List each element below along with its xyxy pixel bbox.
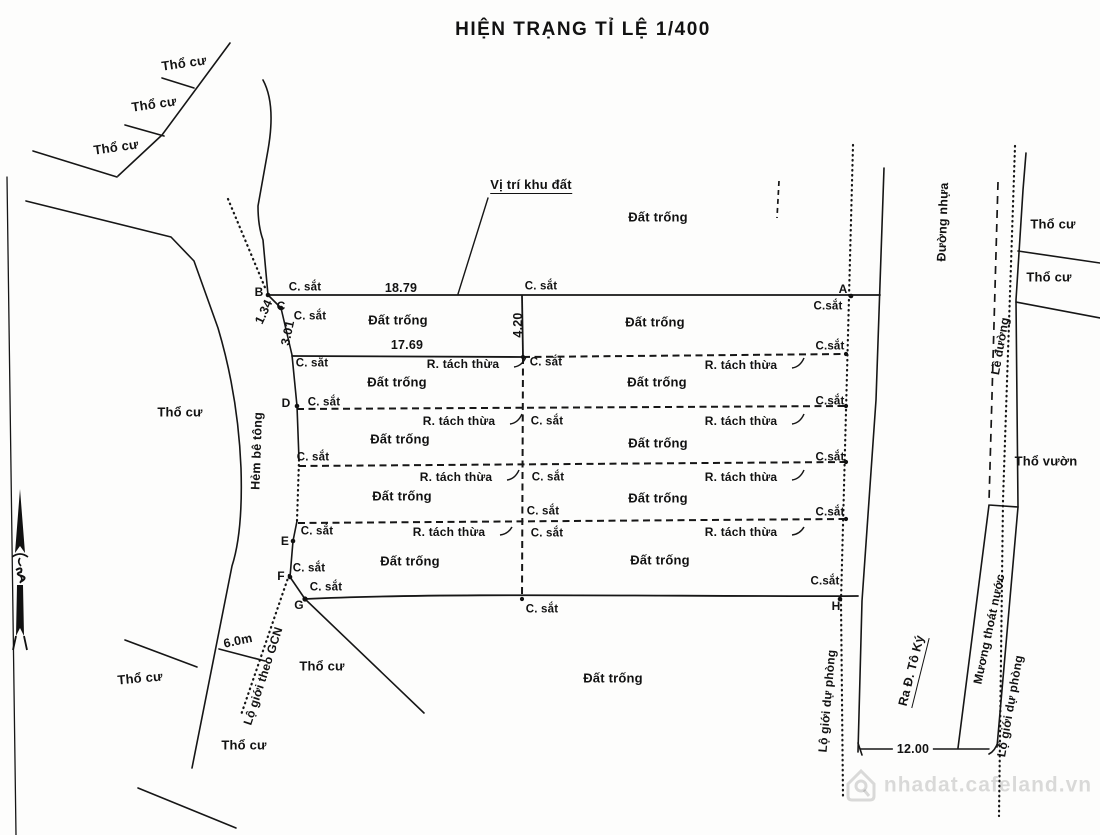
iron-fence-marker-label: C. sắt [532, 472, 565, 484]
survey-sheet: HIỆN TRẠNG TỈ LỆ 1/400 [0, 0, 1100, 835]
split-parcel-label: R. tách thừa [705, 415, 777, 427]
dimension-label: 6.0m [222, 632, 253, 650]
area-label: Đất trống [628, 211, 688, 224]
area-label: Đất trống [625, 316, 685, 329]
dimension-label: 18.79 [385, 282, 417, 295]
iron-fence-marker-label: C. sắt [525, 281, 558, 293]
split-parcel-label: R. tách thừa [420, 471, 492, 483]
split-parcel-label: R. tách thừa [413, 526, 485, 538]
iron-fence-marker-label: C. sắt [296, 358, 329, 370]
dimension-label: 12.00 [893, 743, 933, 756]
survey-point-label: C [277, 300, 286, 312]
split-parcel-label: R. tách thừa [705, 471, 777, 483]
dimension-label: 17.69 [391, 339, 423, 352]
iron-fence-marker-label: C. sắt [294, 311, 327, 323]
iron-fence-marker-label: C. sắt [531, 528, 564, 540]
area-label: Thổ cư [157, 406, 202, 419]
dimension-label: 4.20 [512, 312, 525, 337]
area-label: Thổ cư [299, 660, 344, 673]
iron-fence-marker-label: C. sắt [297, 452, 330, 464]
survey-point-label: B [255, 286, 264, 298]
split-parcel-label: R. tách thừa [705, 526, 777, 538]
area-label: Thổ cư [93, 137, 140, 156]
split-parcel-label: R. tách thừa [705, 359, 777, 371]
dimension-label: 3.01 [279, 319, 296, 346]
area-label: Thổ cư [221, 739, 266, 752]
area-label: Đất trống [372, 490, 432, 503]
iron-fence-marker-label: C. sắt [289, 282, 322, 294]
iron-fence-marker-label: C. sắt [531, 416, 564, 428]
survey-point-label: H [832, 600, 841, 612]
iron-fence-marker-label: C. sắt [293, 563, 326, 575]
area-label: Thổ cư [1030, 218, 1075, 231]
site-location-label: Vị trí khu đất [490, 178, 572, 194]
iron-fence-marker-label: C. sắt [526, 604, 559, 616]
area-label: Đất trống [368, 314, 428, 327]
dimension-label: 1.34 [253, 298, 275, 326]
to-toky-street-label: Ra Đ. Tô Ký [897, 634, 930, 708]
watermark-text: nhadat.cafeland.vn [884, 775, 1092, 796]
area-label: Đất trống [630, 554, 690, 567]
iron-fence-marker-label: C. sắt [308, 397, 341, 409]
drainage-ditch-label: Mương thoát nước [971, 573, 1006, 685]
area-label: Đất trống [380, 555, 440, 568]
split-parcel-label: R. tách thừa [423, 415, 495, 427]
iron-fence-marker-label: C. sắt [310, 582, 343, 594]
area-label: Đất trống [583, 672, 643, 685]
survey-point-label: A [839, 283, 848, 295]
reserve-road-boundary-label: Lộ giới dự phòng [817, 649, 838, 753]
iron-fence-marker-label: C.sắt [815, 341, 844, 353]
road-shoulder-label: Lề đường [989, 316, 1011, 375]
survey-point-label: E [281, 535, 289, 547]
iron-fence-marker-label: C. sắt [530, 357, 563, 369]
iron-fence-marker-label: C.sắt [810, 576, 839, 588]
tho-vuon-label: Thổ vườn [1015, 455, 1078, 468]
iron-fence-marker-label: C. sắt [301, 526, 334, 538]
survey-point-label: F [277, 570, 285, 582]
iron-fence-marker-label: C.sắt [813, 301, 842, 313]
area-label: Đất trống [370, 433, 430, 446]
area-label: Đất trống [628, 437, 688, 450]
iron-fence-marker-label: C.sắt [815, 507, 844, 519]
area-label: Thổ cư [1026, 271, 1071, 284]
labels-layer: Thổ cưThổ cưThổ cưThổ cưThổ cưThổ cưThổ … [0, 0, 1100, 835]
area-label: Đất trống [367, 376, 427, 389]
concrete-alley-label: Hẻm bê tông [249, 412, 264, 490]
iron-fence-marker-label: C.sắt [815, 452, 844, 464]
reserve-road-boundary-label: Lộ giới dự phòng [995, 654, 1025, 758]
split-parcel-label: R. tách thừa [427, 358, 499, 370]
iron-fence-marker-label: C.sắt [815, 396, 844, 408]
area-label: Thổ cư [117, 670, 163, 687]
iron-fence-marker-label: C. sắt [527, 506, 560, 518]
asphalt-road-label: Đường nhựa [935, 182, 950, 261]
area-label: Đất trống [628, 492, 688, 505]
survey-point-label: D [282, 397, 291, 409]
survey-point-label: G [294, 599, 304, 611]
area-label: Đất trống [627, 376, 687, 389]
area-label: Thổ cư [161, 53, 208, 72]
area-label: Thổ cư [131, 94, 178, 113]
